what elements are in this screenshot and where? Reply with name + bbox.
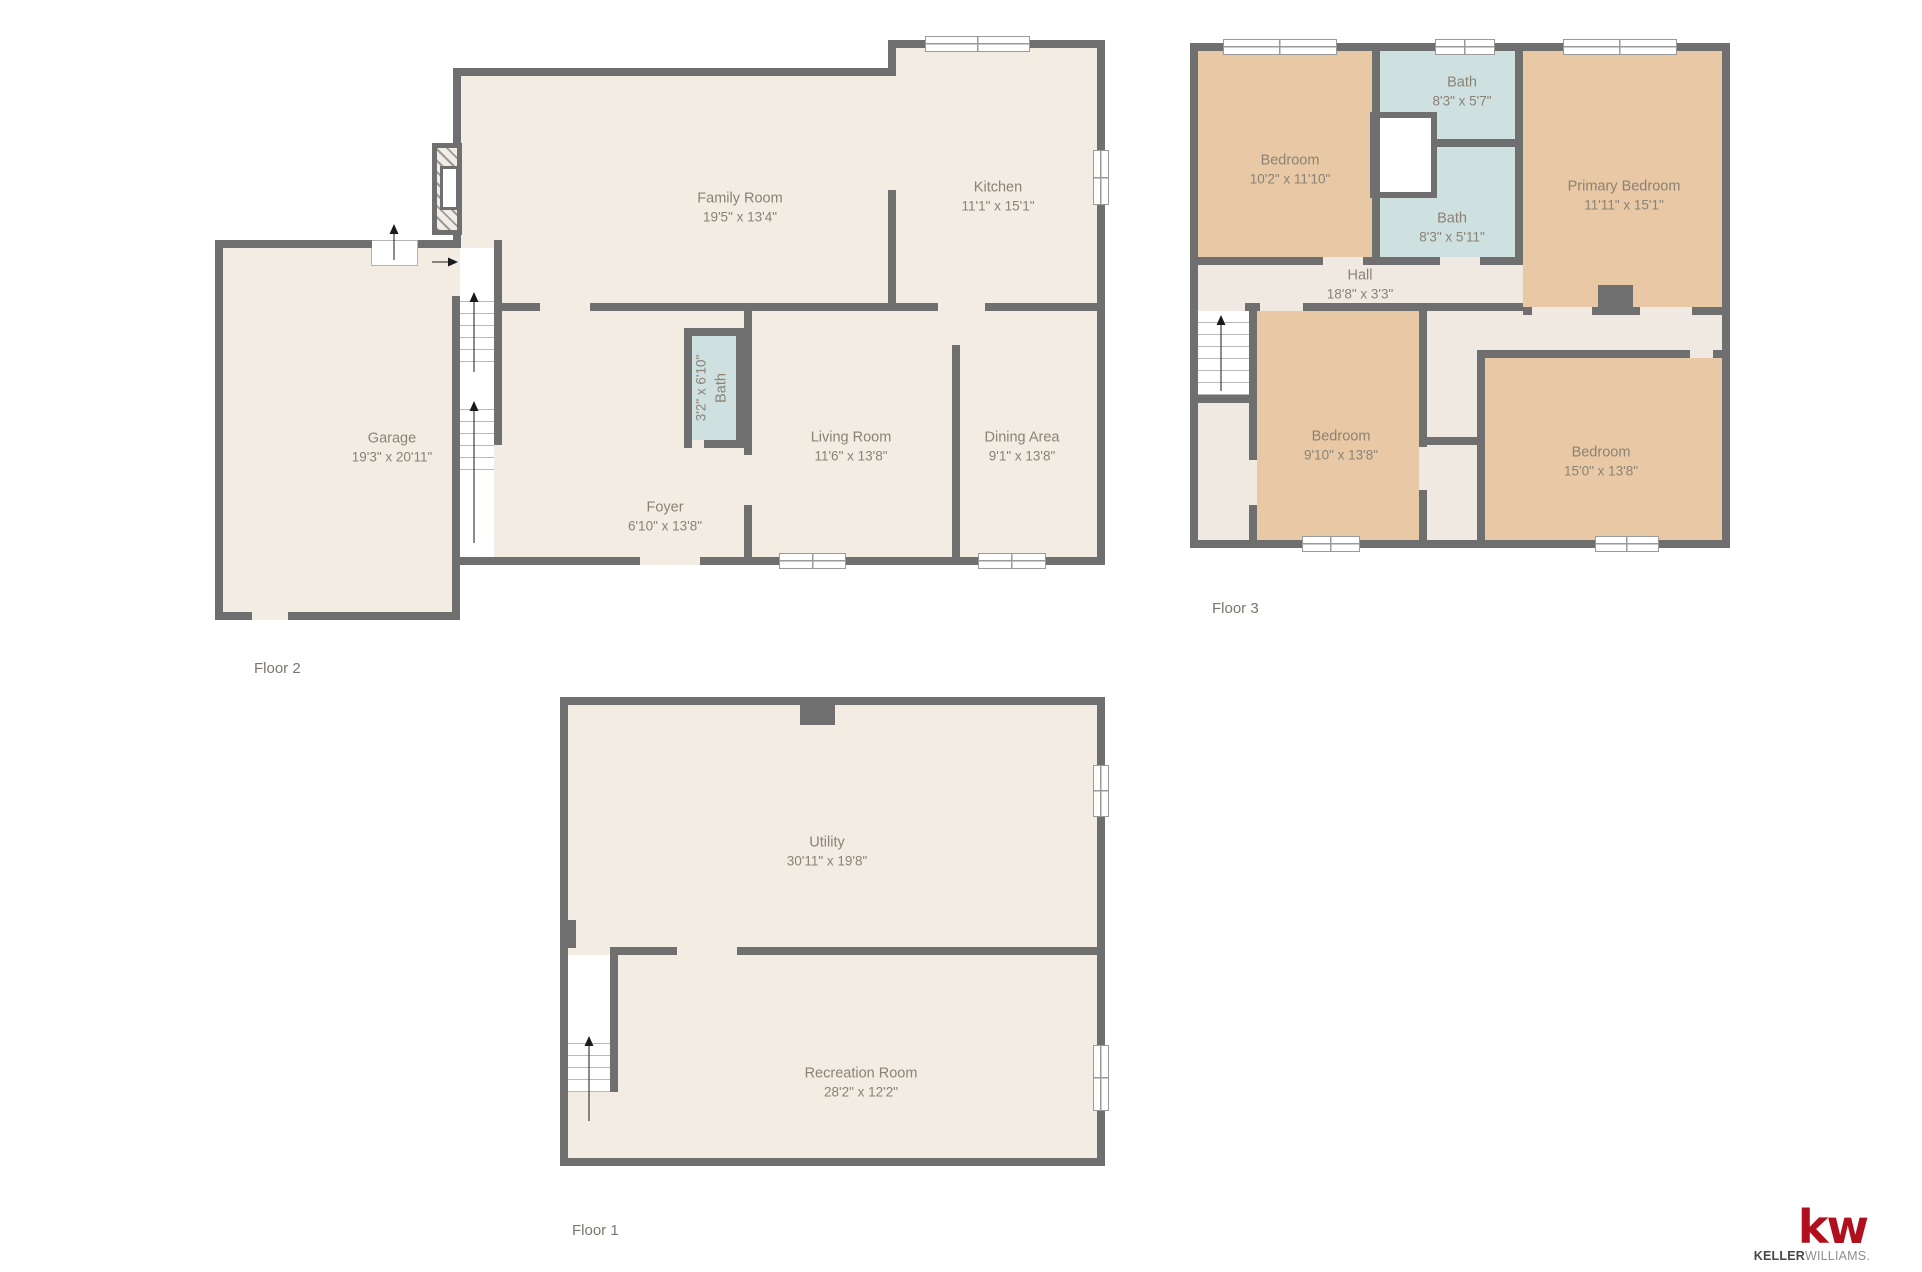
wall bbox=[1477, 350, 1690, 358]
stair-direction-arrow bbox=[1215, 315, 1227, 391]
wall bbox=[590, 303, 938, 311]
wall bbox=[1249, 505, 1257, 540]
wall bbox=[684, 328, 744, 336]
wall bbox=[1419, 437, 1477, 445]
wall bbox=[418, 240, 460, 248]
wall-nub bbox=[568, 920, 576, 948]
window bbox=[779, 553, 846, 569]
kw-logo-name-keller: KELLER bbox=[1754, 1249, 1805, 1263]
room-label-bedroom-bottom-right: Bedroom15'0" x 13'8" bbox=[1564, 444, 1638, 481]
wall bbox=[610, 947, 618, 1092]
wall bbox=[1190, 395, 1257, 403]
wall bbox=[1437, 139, 1523, 147]
wall bbox=[1713, 350, 1722, 358]
wall bbox=[684, 328, 692, 448]
garage-entry-arrow bbox=[388, 224, 400, 260]
room-label-bedroom-bottom-left: Bedroom9'10" x 13'8" bbox=[1304, 428, 1378, 465]
wall bbox=[1419, 311, 1427, 447]
stair-direction-arrow bbox=[468, 401, 480, 543]
room-label-hall: Hall18'8" x 3'3" bbox=[1327, 267, 1394, 304]
wall bbox=[1303, 303, 1523, 311]
room-label-bath-floor2: Bath3'2" x 6'10" bbox=[694, 355, 731, 422]
room-label-foyer: Foyer6'10" x 13'8" bbox=[628, 499, 702, 536]
wall bbox=[1477, 358, 1485, 540]
window bbox=[1093, 1045, 1109, 1111]
wall bbox=[610, 947, 677, 955]
wall bbox=[846, 557, 978, 565]
window bbox=[978, 553, 1046, 569]
wall bbox=[737, 947, 1097, 955]
wall bbox=[494, 240, 502, 445]
room-label-kitchen: Kitchen11'1" x 15'1" bbox=[961, 179, 1034, 216]
wall bbox=[1190, 257, 1323, 265]
room-label-primary-bedroom: Primary Bedroom11'11" x 15'1" bbox=[1568, 178, 1681, 215]
wall bbox=[744, 505, 752, 557]
wall bbox=[453, 68, 896, 76]
wall bbox=[1097, 40, 1105, 565]
wall bbox=[985, 303, 1097, 311]
wall bbox=[888, 190, 896, 311]
wall bbox=[952, 345, 960, 557]
window bbox=[1093, 765, 1109, 817]
room-label-dining-area: Dining Area9'1" x 13'8" bbox=[985, 429, 1060, 466]
window bbox=[1595, 536, 1659, 552]
wall bbox=[700, 557, 779, 565]
room-label-living-room: Living Room11'6" x 13'8" bbox=[811, 429, 892, 466]
window bbox=[1302, 536, 1360, 552]
window bbox=[1223, 39, 1337, 55]
wall bbox=[1190, 43, 1198, 548]
wall bbox=[288, 612, 460, 620]
room-label-utility: Utility30'11" x 19'8" bbox=[787, 834, 868, 871]
kitchen-room bbox=[892, 40, 1105, 311]
chimney-firebox bbox=[440, 166, 459, 210]
keller-williams-logo: kw KELLERWILLIAMS. bbox=[1750, 1206, 1870, 1263]
wall bbox=[1372, 51, 1380, 257]
wall bbox=[1249, 403, 1257, 460]
wall bbox=[502, 303, 540, 311]
chimney-block bbox=[800, 697, 835, 725]
floor-3-label: Floor 3 bbox=[1212, 600, 1259, 617]
wall bbox=[1363, 257, 1440, 265]
room-label-bath-upper: Bath8'3" x 5'7" bbox=[1432, 74, 1491, 111]
stair-direction-arrow bbox=[468, 292, 480, 372]
window bbox=[1435, 39, 1495, 55]
wall bbox=[215, 240, 223, 620]
wall bbox=[1419, 490, 1427, 540]
window bbox=[1563, 39, 1677, 55]
wall bbox=[1523, 307, 1532, 315]
room-label-family-room: Family Room19'5" x 13'4" bbox=[697, 190, 782, 227]
wall bbox=[560, 1158, 1105, 1166]
bath-closet bbox=[1370, 112, 1437, 198]
wall bbox=[1046, 557, 1105, 565]
wall bbox=[560, 697, 568, 1166]
wall bbox=[1480, 257, 1523, 265]
room-label-bedroom-top-left: Bedroom10'2" x 11'10" bbox=[1250, 152, 1331, 189]
wall bbox=[453, 68, 461, 145]
wall bbox=[736, 328, 744, 448]
kw-logo-name: KELLERWILLIAMS. bbox=[1750, 1249, 1870, 1263]
room-label-garage: Garage19'3" x 20'11" bbox=[352, 430, 433, 467]
house-entry-arrow bbox=[432, 256, 458, 268]
wall bbox=[453, 557, 640, 565]
wall bbox=[1692, 307, 1722, 315]
bedroom-bottom-left-room bbox=[1257, 311, 1419, 540]
wall bbox=[1245, 303, 1260, 311]
kw-logo-mark: kw bbox=[1750, 1206, 1870, 1248]
stair-direction-arrow bbox=[583, 1036, 595, 1121]
wall bbox=[744, 311, 752, 455]
window bbox=[925, 36, 1030, 52]
room-label-recreation-room: Recreation Room28'2" x 12'2" bbox=[805, 1065, 918, 1102]
wall bbox=[452, 296, 460, 620]
room-label-bath-lower: Bath8'3" x 5'11" bbox=[1419, 210, 1485, 247]
wall bbox=[704, 440, 744, 448]
wall bbox=[215, 240, 372, 248]
floor-2-label: Floor 2 bbox=[254, 660, 301, 677]
wall bbox=[215, 612, 252, 620]
family-room bbox=[457, 68, 892, 311]
wall bbox=[1722, 43, 1730, 548]
chimney-block bbox=[1598, 285, 1633, 315]
floor-1-label: Floor 1 bbox=[572, 1222, 619, 1239]
window bbox=[1093, 150, 1109, 205]
floor-plan-canvas: Family Room19'5" x 13'4" Kitchen11'1" x … bbox=[0, 0, 1922, 1272]
kw-logo-name-williams: WILLIAMS. bbox=[1805, 1249, 1870, 1263]
wall bbox=[1515, 51, 1523, 265]
wall bbox=[1249, 311, 1257, 395]
